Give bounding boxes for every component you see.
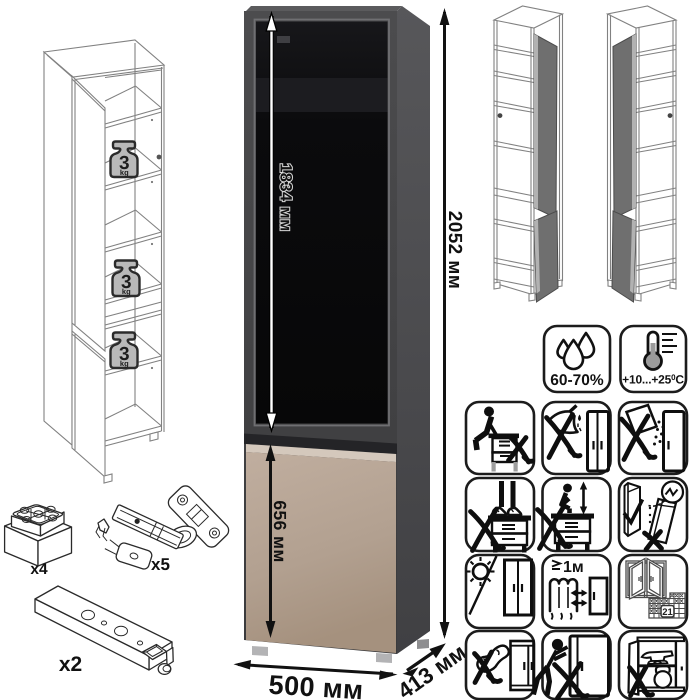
svg-text:656 мм: 656 мм <box>270 500 290 562</box>
svg-text:x2: x2 <box>59 653 82 676</box>
svg-text:21: 21 <box>662 607 673 618</box>
svg-text:x4: x4 <box>30 561 48 578</box>
svg-text:500 мм: 500 мм <box>268 670 365 700</box>
svg-text:60-70%: 60-70% <box>550 372 604 389</box>
svg-text:1834 мм: 1834 мм <box>277 163 295 232</box>
svg-text:x5: x5 <box>151 555 170 574</box>
svg-text:+10...+250C: +10...+250C <box>622 373 684 387</box>
svg-text:1м: 1м <box>563 559 584 576</box>
svg-text:2052 мм: 2052 мм <box>444 211 465 289</box>
